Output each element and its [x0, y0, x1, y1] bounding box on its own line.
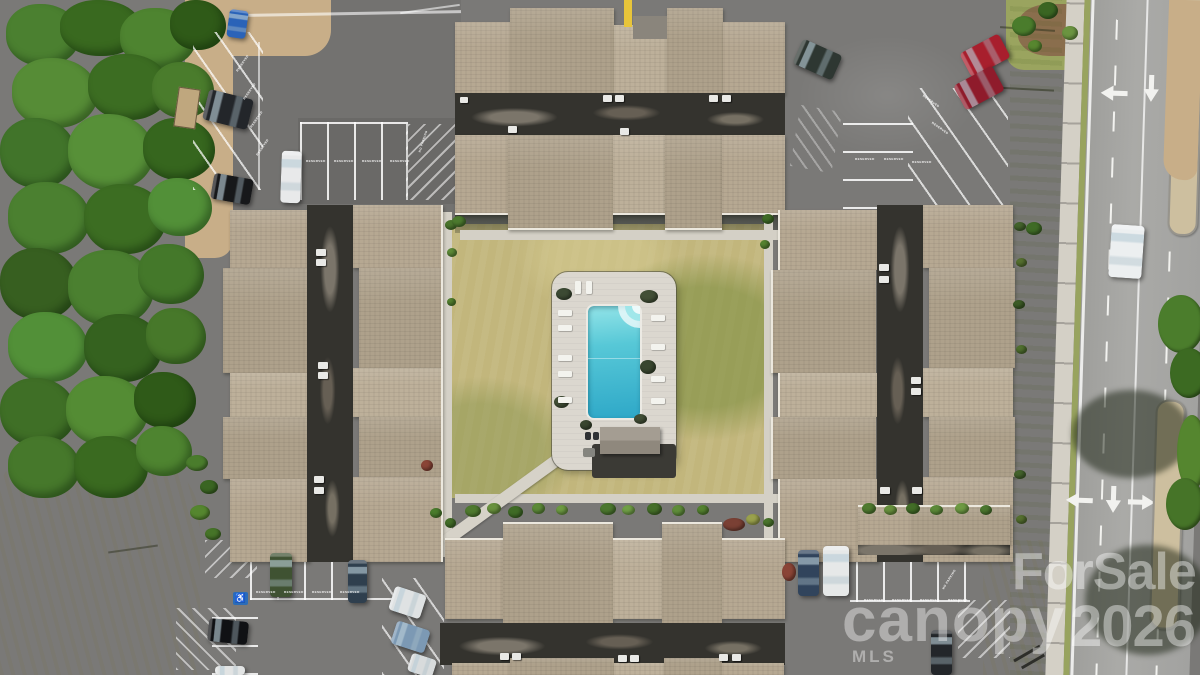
watermark-brand-main: canopy: [842, 590, 1065, 652]
painted-parking-text: RESERVED: [340, 591, 360, 594]
painted-parking-text: RESERVED: [884, 158, 904, 161]
painted-parking-text: RESERVED: [922, 95, 940, 109]
painted-parking-text: RESERVED: [362, 160, 382, 163]
painted-parking-text: RESERVED: [312, 591, 332, 594]
painted-parking-text: RESERVED: [931, 122, 949, 136]
painted-parking-text: RESERVED: [912, 161, 932, 164]
watermark-brand-sub: MLS: [852, 648, 897, 665]
painted-parking-text: RESERVED: [243, 83, 257, 101]
painted-parking-text: RESERVED: [306, 160, 326, 163]
painted-parking-text: RESERVED: [334, 160, 354, 163]
painted-parking-text: RESERVED: [256, 139, 270, 157]
painted-parking-text: RESERVED: [256, 591, 276, 594]
painted-parking-text: RESERVED: [236, 55, 250, 73]
painted-parking-text: NO PARKING: [419, 130, 429, 153]
painted-parking-text: RESERVED: [250, 111, 264, 129]
painted-parking-text: RESERVED: [855, 158, 875, 161]
aerial-photo-condo-complex: ♿: [0, 0, 1200, 675]
painted-parking-text: RESERVED: [284, 591, 304, 594]
painted-parking-text: RESERVED: [390, 160, 410, 163]
watermark-year: 2026: [1070, 598, 1195, 656]
